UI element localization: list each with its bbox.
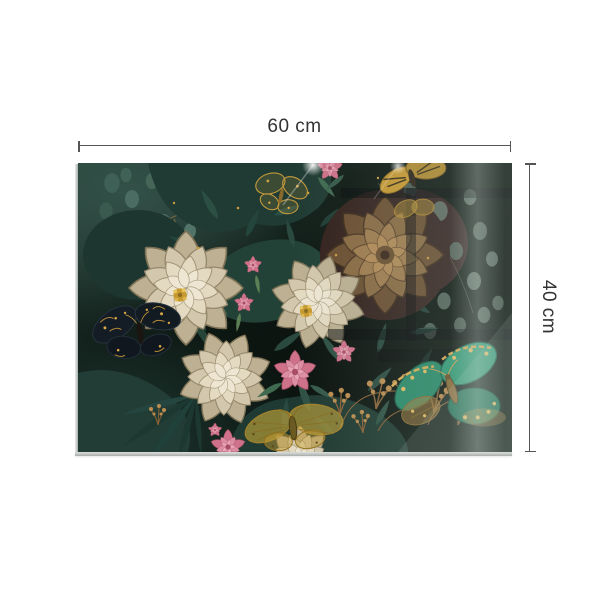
glass-sheen: [283, 163, 512, 452]
width-dimension-label: 60 cm: [78, 116, 511, 138]
artwork-panel: [78, 163, 512, 452]
height-dimension-label: 40 cm: [537, 280, 559, 334]
product-dimension-mockup: 60 cm 40 cm: [0, 0, 600, 600]
flower-peony-cream-1: [128, 230, 244, 346]
height-tick-bottom: [525, 451, 536, 453]
width-dimension-line: [78, 145, 511, 146]
height-tick-top: [525, 163, 536, 165]
glass-edge-bottom: [75, 452, 512, 456]
height-dimension-line: [529, 163, 530, 452]
floral-glass-art-image: [78, 163, 512, 452]
width-tick-right: [510, 141, 512, 152]
width-tick-left: [78, 141, 80, 152]
